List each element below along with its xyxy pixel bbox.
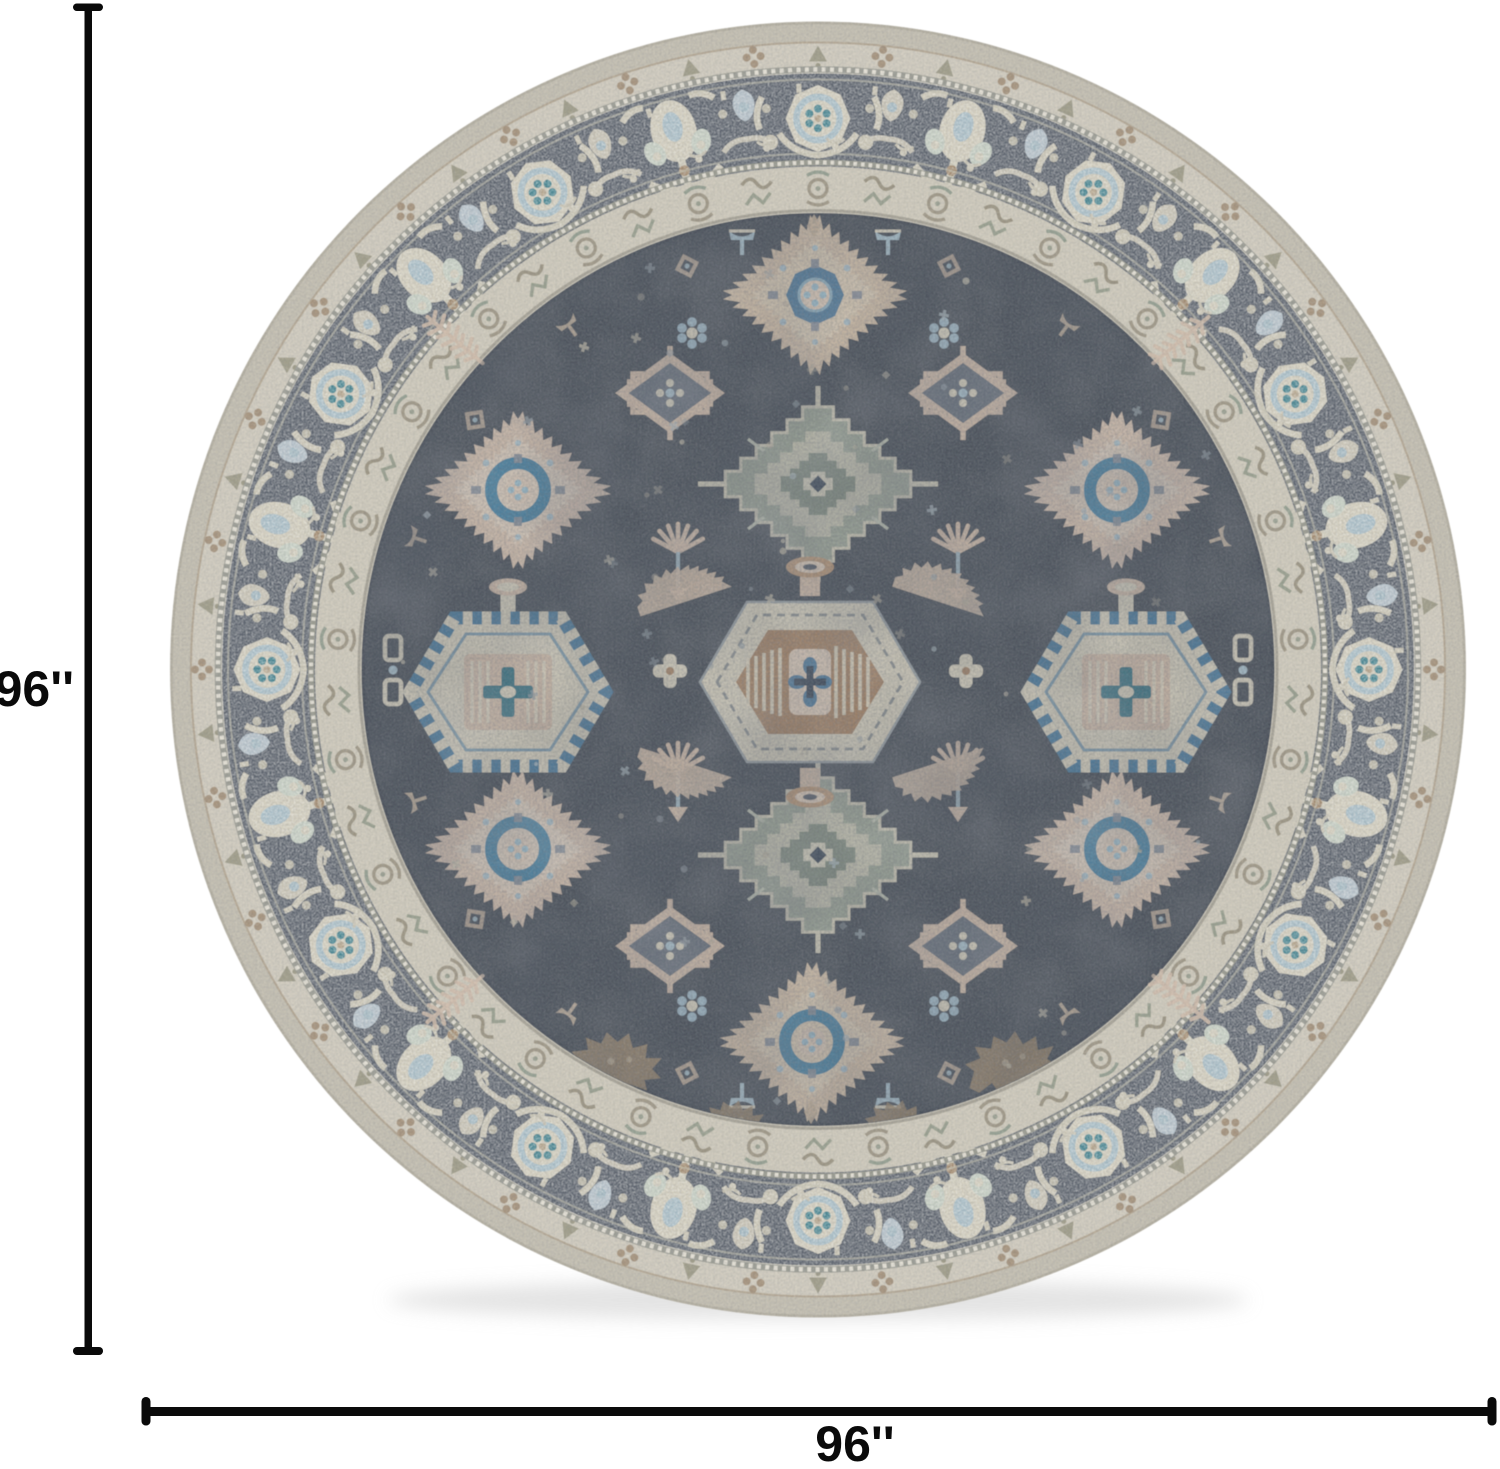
- svg-text:96'': 96'': [0, 661, 74, 717]
- svg-text:96'': 96'': [815, 1416, 894, 1464]
